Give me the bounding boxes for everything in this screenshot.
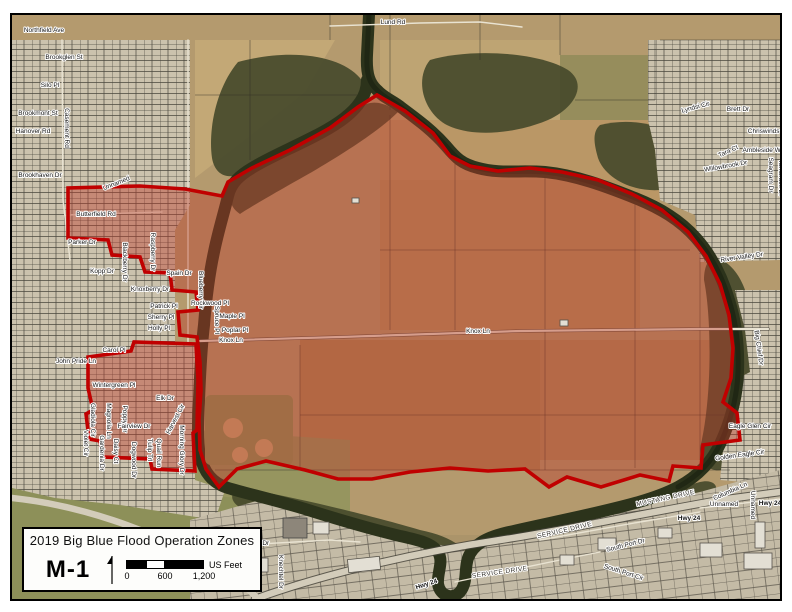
street-label: Lund Rd	[381, 19, 406, 26]
north-arrow-icon	[104, 553, 120, 587]
street-label: Knechtel Dr	[277, 555, 284, 590]
map-frame: Lund RdNorthfield AveBrookglen StSilo Pl…	[10, 13, 782, 601]
street-label: Casement Rd	[63, 108, 70, 148]
street-label: Chriswinds Dr	[748, 128, 780, 135]
street-label: Quail Run	[155, 439, 162, 468]
street-label: Rockwood Pl	[191, 300, 229, 307]
street-label: Hanover Rd	[16, 128, 51, 135]
street-label: Holly Pl	[148, 325, 171, 332]
street-label: Parker Dr	[68, 239, 97, 246]
street-label: Blackberry Dr	[121, 242, 128, 282]
street-label: Spain Dr	[166, 270, 192, 277]
street-label: Unnamed	[710, 501, 739, 508]
street-label: Elk Dr	[156, 395, 175, 402]
map-title: 2019 Big Blue Flood Operation Zones	[24, 533, 260, 548]
street-label: Silo Pl	[41, 82, 60, 89]
street-label: Sherry Pl	[148, 314, 175, 321]
street-label: Knoxberry Dr	[131, 286, 170, 293]
street-label: Kopp Dr	[90, 268, 115, 275]
street-label: Wintergreen Pl	[93, 382, 137, 389]
street-label: Brookmont St	[18, 110, 58, 117]
street-label: Brookhaven Dr	[18, 172, 62, 179]
street-label: Spruce Pl	[213, 306, 220, 335]
street-label: Violet Cir	[82, 430, 89, 457]
street-label: Patrick Pl	[150, 303, 178, 310]
street-label: Fairview Dr	[118, 423, 152, 430]
street-label: Northfield Ave	[24, 27, 65, 34]
street-label: Brookglen St	[45, 54, 82, 61]
street-label: Eagle Glen Cir	[729, 423, 772, 430]
scale-bar: US Feet 0 600 1,200	[126, 560, 252, 581]
street-label: Knox Ln	[219, 337, 243, 344]
street-label: Seagram Dr	[767, 157, 774, 193]
street-label: Butterfield Rd	[76, 211, 116, 218]
street-label: Hwy 24	[759, 500, 780, 507]
aerial-map: Lund RdNorthfield AveBrookglen StSilo Pl…	[12, 15, 780, 599]
street-label: Dogwood Dr	[130, 442, 137, 479]
street-label: Gladiola Cir	[89, 403, 96, 438]
street-label: Maple Pl	[219, 313, 245, 320]
street-label: Ambleside Way	[743, 147, 780, 154]
street-label: Gardenia Dr	[98, 435, 105, 471]
zone-id-label: M-1	[32, 556, 104, 584]
street-label: John Pride Ln	[56, 358, 96, 365]
scale-tick-0: 0	[124, 571, 129, 581]
street-label: Daisy Ct	[112, 439, 119, 464]
title-box: 2019 Big Blue Flood Operation Zones M-1 …	[22, 527, 262, 592]
map-page: Lund RdNorthfield AveBrookglen StSilo Pl…	[0, 0, 792, 612]
street-label: Knox Ln	[466, 328, 490, 335]
street-label: Raspberry Dr	[149, 233, 156, 272]
street-label: Unnamed	[749, 491, 756, 520]
street-label: Morning Glory Dr	[178, 425, 185, 475]
street-label: Tulip Trl	[146, 439, 153, 462]
street-label: Tamarack Dr	[777, 160, 780, 198]
scale-tick-1200: 1,200	[193, 571, 216, 581]
scale-tick-600: 600	[157, 571, 172, 581]
street-label: Brett Dr	[727, 106, 750, 113]
scale-units: US Feet	[209, 560, 242, 570]
street-label: Magnolia Ln	[105, 403, 112, 439]
street-label: Poplar Pl	[222, 327, 249, 334]
street-label: Hwy 24	[678, 515, 701, 522]
street-label: Carol Pl	[102, 347, 126, 354]
